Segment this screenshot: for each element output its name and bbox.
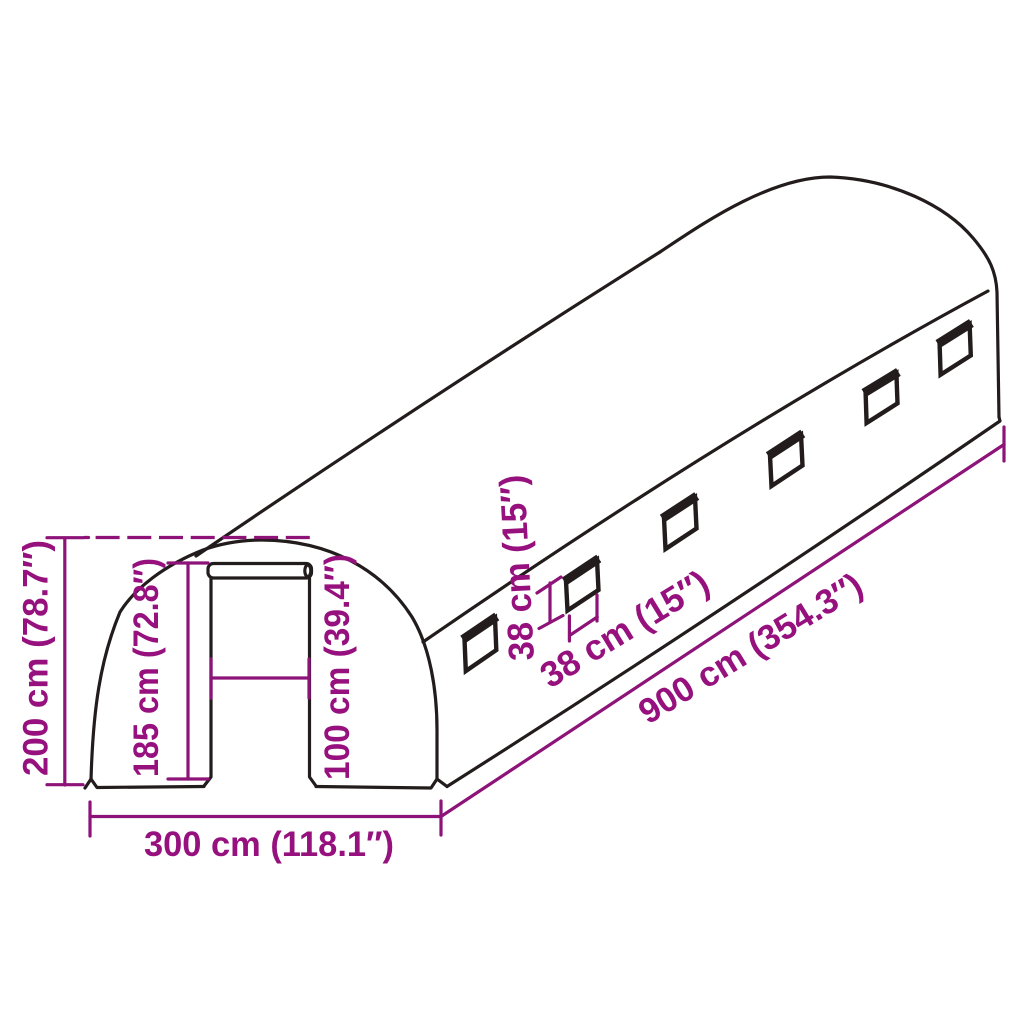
svg-text:185 cm (72.8″): 185 cm (72.8″) — [127, 558, 166, 777]
svg-text:200 cm (78.7″): 200 cm (78.7″) — [17, 540, 56, 776]
svg-text:100 cm (39.4″): 100 cm (39.4″) — [318, 554, 357, 780]
svg-text:300 cm (118.1″): 300 cm (118.1″) — [144, 825, 394, 864]
